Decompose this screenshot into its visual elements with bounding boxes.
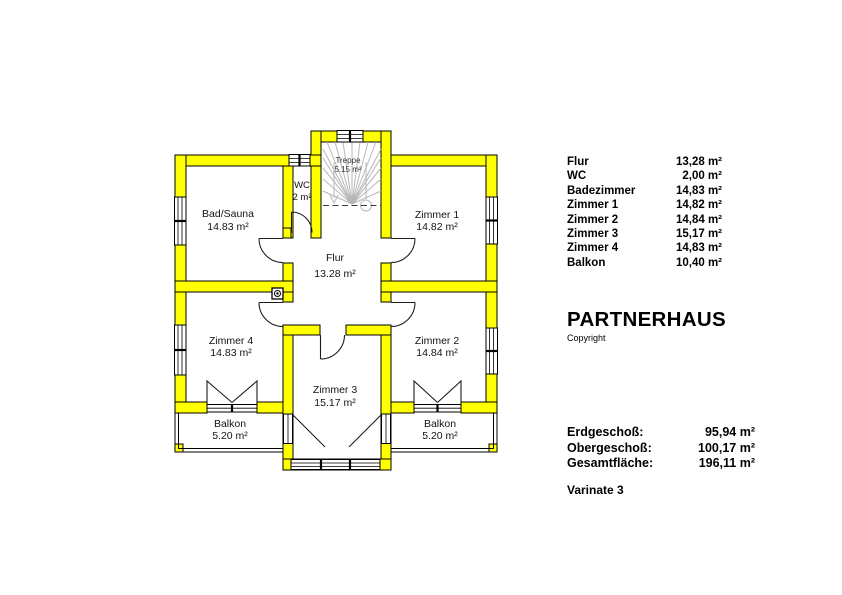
legend-row: Zimmer 315,17 m² <box>567 227 722 241</box>
wall-flur-east <box>381 326 391 470</box>
wall-south-right <box>391 402 414 413</box>
legend-label: Zimmer 3 <box>567 227 618 241</box>
copyright-note: Copyright <box>567 333 606 343</box>
legend-value: 14,83 m² <box>676 184 722 198</box>
staircase <box>323 142 381 211</box>
wall-south-left <box>257 402 283 413</box>
legend-label: WC <box>567 169 586 183</box>
room-label-zimmer3: Zimmer 3 <box>313 384 357 396</box>
legend-value: 10,40 m² <box>676 256 722 270</box>
french-door-zimmer3-right <box>349 415 381 447</box>
room-area-balkon-left: 5.20 m² <box>212 430 248 442</box>
room-label-zimmer4: Zimmer 4 <box>209 335 253 347</box>
wall-south-right <box>461 402 497 413</box>
legend-value: 14,82 m² <box>676 198 722 212</box>
legend-value: 14,84 m² <box>676 213 722 227</box>
project-title: PARTNERHAUS <box>567 308 726 332</box>
summary-value: 100,17 m² <box>698 441 755 457</box>
legend-label: Balkon <box>567 256 605 270</box>
legend-label: Zimmer 2 <box>567 213 618 227</box>
room-area-flur: 13.28 m² <box>314 268 356 280</box>
door-zimmer4 <box>259 303 283 327</box>
wall-zimmer1-zimmer2 <box>381 281 497 292</box>
wall-tower-left <box>311 131 321 238</box>
french-door-zimmer4 <box>207 381 257 403</box>
summary-row: Gesamtfläche:196,11 m² <box>567 456 755 472</box>
room-label-balkon-right: Balkon <box>424 418 456 430</box>
summary-value: 95,94 m² <box>705 425 755 441</box>
wall-south-left <box>175 402 207 413</box>
summary-label: Erdgeschoß: <box>567 425 643 441</box>
door-sill <box>207 405 257 413</box>
window <box>486 328 498 374</box>
room-area-zimmer3: 15.17 m² <box>314 397 356 409</box>
door-zimmer3 <box>321 335 345 359</box>
door-zimmer1 <box>391 239 415 263</box>
legend-label: Zimmer 1 <box>567 198 618 212</box>
summary-label: Obergeschoß: <box>567 441 652 457</box>
window <box>337 131 363 143</box>
room-area-treppe: 5.15 m² <box>334 165 361 174</box>
french-door-zimmer2 <box>414 381 461 403</box>
wall-wc-bottom <box>283 228 291 238</box>
room-label-treppe: Treppe <box>335 156 361 165</box>
door-sill <box>382 414 391 444</box>
legend-row: Balkon10,40 m² <box>567 256 722 270</box>
room-label-flur: Flur <box>326 252 345 264</box>
room-label-zimmer1: Zimmer 1 <box>415 209 459 221</box>
room-area-bad-sauna: 14.83 m² <box>207 221 249 233</box>
legend-row: Flur13,28 m² <box>567 155 722 169</box>
door-wc <box>292 212 313 233</box>
french-door-zimmer3-left <box>293 415 325 447</box>
summary-row: Obergeschoß:100,17 m² <box>567 441 755 457</box>
floor-plan-drawing: Treppe 5.15 m² WC 2 m² Bad/Sauna 14.83 m… <box>0 0 842 595</box>
legend-row: Zimmer 114,82 m² <box>567 198 722 212</box>
legend-value: 15,17 m² <box>676 227 722 241</box>
wall-flur-east <box>381 131 391 238</box>
room-area-zimmer4: 14.83 m² <box>210 347 252 359</box>
door-zimmer2 <box>391 303 415 327</box>
window <box>175 325 187 375</box>
window <box>291 460 380 470</box>
room-label-wc: WC <box>294 180 310 191</box>
summary-row: Erdgeschoß:95,94 m² <box>567 425 755 441</box>
room-area-balkon-right: 5.20 m² <box>422 430 458 442</box>
legend-label: Zimmer 4 <box>567 241 618 255</box>
room-area-legend: Flur13,28 m² WC2,00 m² Badezimmer14,83 m… <box>567 155 722 270</box>
legend-label: Flur <box>567 155 589 169</box>
floor-plan-page: Treppe 5.15 m² WC 2 m² Bad/Sauna 14.83 m… <box>0 0 842 595</box>
wall-zimmer3-top <box>346 325 391 335</box>
legend-label: Badezimmer <box>567 184 635 198</box>
window <box>175 197 187 245</box>
wall-flur-west <box>283 326 293 470</box>
variant-label: Varinate 3 <box>567 483 624 497</box>
legend-row: Zimmer 414,83 m² <box>567 241 722 255</box>
room-area-zimmer2: 14.84 m² <box>416 347 458 359</box>
lamp-symbol <box>272 288 283 299</box>
room-labels: Treppe 5.15 m² WC 2 m² Bad/Sauna 14.83 m… <box>202 156 459 442</box>
door-bad-sauna <box>259 239 283 263</box>
door-sill <box>284 414 293 444</box>
window <box>486 197 498 244</box>
legend-value: 2,00 m² <box>682 169 722 183</box>
room-label-zimmer2: Zimmer 2 <box>415 335 459 347</box>
legend-row: Zimmer 214,84 m² <box>567 213 722 227</box>
room-label-bad-sauna: Bad/Sauna <box>202 208 254 220</box>
legend-value: 13,28 m² <box>676 155 722 169</box>
room-area-wc: 2 m² <box>293 192 312 203</box>
door-sill <box>414 405 461 413</box>
summary-value: 196,11 m² <box>699 456 755 472</box>
window <box>289 155 310 167</box>
summary-label: Gesamtfläche: <box>567 456 653 472</box>
legend-value: 14,83 m² <box>676 241 722 255</box>
wall-zimmer3-top <box>283 325 320 335</box>
legend-row: Badezimmer14,83 m² <box>567 184 722 198</box>
wall-top-right <box>381 155 497 166</box>
legend-row: WC2,00 m² <box>567 169 722 183</box>
room-area-zimmer1: 14.82 m² <box>416 221 458 233</box>
stair-treads <box>323 142 381 211</box>
area-summary: Erdgeschoß:95,94 m² Obergeschoß:100,17 m… <box>567 425 755 472</box>
room-label-balkon-left: Balkon <box>214 418 246 430</box>
